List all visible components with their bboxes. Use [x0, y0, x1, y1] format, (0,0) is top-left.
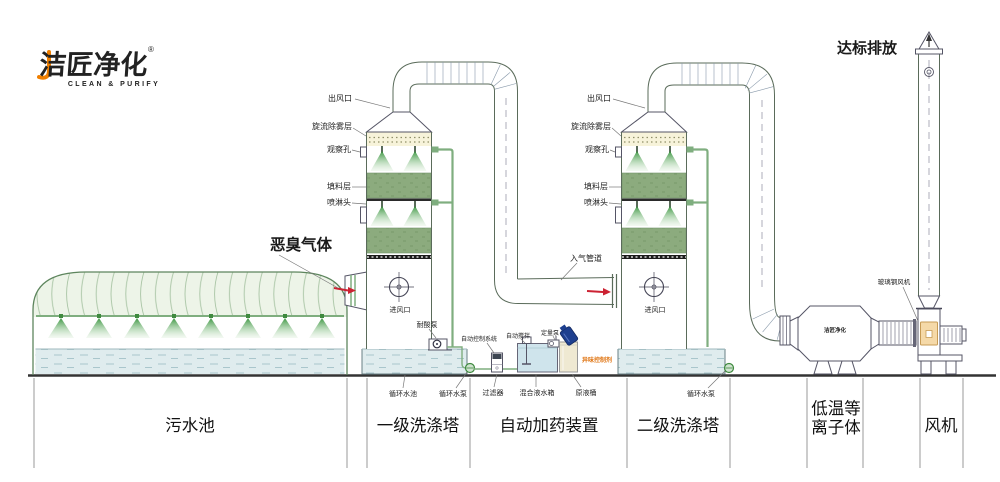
- mix-tank-label: 混合液水箱: [520, 388, 555, 397]
- section-label-tower2: 二级洗涤塔: [637, 416, 720, 435]
- fan-inlet-cone: [919, 296, 940, 308]
- discharge-label: 达标排放: [837, 39, 898, 57]
- inlet-cone: [790, 317, 798, 350]
- packing-texture: [367, 228, 431, 253]
- plasma-leg: [814, 361, 832, 374]
- leader: [403, 375, 405, 388]
- leader: [352, 203, 366, 204]
- demister-label: 旋流除雾层: [312, 121, 352, 131]
- fan-leg: [921, 361, 931, 374]
- leader: [561, 263, 577, 280]
- air-inlet-label: 进风口: [390, 306, 411, 314]
- fan-leg: [946, 361, 956, 374]
- acid-pump-label: 耐酸泵: [417, 320, 438, 329]
- odor-gas-label: 恶臭气体: [270, 235, 333, 254]
- leader: [352, 150, 360, 152]
- auto-stir-label: 自动搅拌: [506, 332, 530, 340]
- packing-label: 填料层: [327, 181, 351, 191]
- stock-barrel-label: 原液桶: [576, 388, 597, 397]
- logo-tagline: CLEAN & PURIFY: [68, 81, 160, 88]
- control-filter-unit: [492, 353, 503, 372]
- section-label-plasma-1: 低温等: [811, 399, 861, 418]
- leader: [355, 99, 390, 108]
- tower-cone: [367, 112, 432, 132]
- duct-ticks: [682, 63, 783, 340]
- motor-cap: [962, 329, 966, 341]
- observe-label: 观察孔: [585, 144, 609, 154]
- brand-logo: 洁匠净化 ® CLEAN & PURIFY: [38, 45, 160, 88]
- demister-label: 旋流除雾层: [571, 121, 611, 131]
- circulation-pipe: [438, 150, 453, 348]
- observation-port: [616, 147, 622, 157]
- section-label-dosing: 自动加药装置: [500, 416, 599, 435]
- spray-fitting: [687, 200, 694, 206]
- pool-spray-nozzles: [48, 314, 335, 338]
- leader: [487, 343, 494, 353]
- circulating-pump-1: [466, 364, 475, 373]
- spray-head-label: 喷淋头: [327, 197, 351, 207]
- inlet-flange: [780, 316, 790, 345]
- section-label-fan: 风机: [925, 416, 959, 435]
- circulating-pool-1: [362, 349, 467, 374]
- spray-fitting: [432, 147, 439, 153]
- exhaust-stack: 达标排放: [837, 32, 943, 296]
- spray-head-label: 喷淋头: [584, 197, 608, 207]
- odor-agent-label: 异味控制剂: [582, 356, 612, 364]
- section-label-plasma-2: 离子体: [811, 418, 861, 437]
- scrubber-tower-1: 进风口 出风口 旋流除雾层 观察孔 填料层 喷淋头: [312, 62, 617, 368]
- circ-pump-1-label: 循环水泵: [439, 389, 467, 398]
- fan-motor: [940, 326, 962, 344]
- spray-header-band: [622, 199, 686, 202]
- spray-header-band: [367, 199, 431, 202]
- diagram-svg: 洁匠净化 ® CLEAN & PURIFY 污水池 一级洗涤塔 自动加药装置 二…: [0, 0, 1000, 482]
- meter-pump-label: 定量泵: [541, 329, 559, 337]
- packing-texture: [367, 173, 431, 198]
- spray-fitting: [432, 200, 439, 206]
- outlet-label: 出风口: [328, 93, 352, 103]
- demister-layer: [367, 133, 431, 147]
- demister-layer: [622, 133, 686, 147]
- tower-cone: [622, 112, 687, 132]
- section-label-pool: 污水池: [165, 416, 215, 435]
- fan-base-frame: [918, 355, 962, 361]
- air-inlet-label: 进风口: [645, 306, 666, 314]
- logo-brand-text: 洁匠净化: [38, 50, 148, 80]
- observe-label: 观察孔: [327, 144, 351, 154]
- outlet-cone: [871, 318, 879, 349]
- process-flow-diagram: 洁匠净化 ® CLEAN & PURIFY 污水池 一级洗涤塔 自动加药装置 二…: [0, 0, 1000, 482]
- spray-fitting: [687, 147, 694, 153]
- observation-port: [616, 207, 622, 223]
- plasma-brand-text: 洁匠净化: [824, 326, 847, 334]
- leader: [612, 128, 621, 136]
- leader: [353, 128, 366, 136]
- section-labels: 污水池 一级洗涤塔 自动加药装置 二级洗涤塔 低温等 离子体 风机: [165, 399, 958, 437]
- leader: [610, 150, 615, 152]
- frp-fan-label: 玻璃钢风机: [878, 277, 911, 286]
- flange-bar: [913, 319, 916, 347]
- circulation-pipe: [693, 150, 708, 348]
- filter-label: 过滤器: [483, 388, 504, 397]
- circ-pump-2-label: 循环水泵: [687, 389, 715, 398]
- scrubber-tower-2: 进风口 出风口 旋流除雾层 观察孔 填料层 喷淋头: [571, 63, 783, 398]
- plasma-leg: [838, 361, 856, 374]
- stock-barrel: [560, 342, 578, 372]
- packing-texture: [622, 173, 686, 198]
- observation-port: [361, 207, 367, 223]
- section-label-tower1: 一级洗涤塔: [377, 416, 460, 435]
- packing-texture: [622, 228, 686, 253]
- flow-arrow-icon: [587, 288, 611, 296]
- observation-port: [361, 147, 367, 157]
- circulating-pool-2: [618, 349, 725, 374]
- mixing-tank: [518, 344, 558, 373]
- leader: [903, 287, 918, 321]
- sewage-pool-greenhouse: 恶臭气体: [33, 235, 367, 375]
- leader: [609, 203, 621, 204]
- outlet-label: 出风口: [587, 93, 611, 103]
- inter-tower-gas-pipe: 入气管道: [561, 253, 611, 296]
- stack-cap: [916, 49, 943, 54]
- leader: [613, 99, 645, 108]
- gas-pipe-label: 入气管道: [570, 253, 602, 263]
- duct-ticks: [427, 62, 516, 89]
- control-system-label: 自动控制系统: [461, 335, 497, 343]
- logo-registered-mark: ®: [148, 45, 154, 54]
- plasma-unit: 洁匠净化: [780, 306, 916, 374]
- circ-pool-label: 循环水池: [389, 389, 417, 398]
- sewage-water-texture: [36, 349, 345, 374]
- circulating-pump-2: [725, 364, 734, 373]
- fan-hub: [926, 331, 932, 338]
- greenhouse-cover-ribs: [33, 272, 347, 317]
- outlet-pipe: [879, 321, 916, 345]
- packing-label: 填料层: [584, 181, 608, 191]
- dosing-station: 自动控制系统 自动搅拌 定量泵 异味控制剂 过滤器 混合液水箱 原液桶: [461, 323, 612, 397]
